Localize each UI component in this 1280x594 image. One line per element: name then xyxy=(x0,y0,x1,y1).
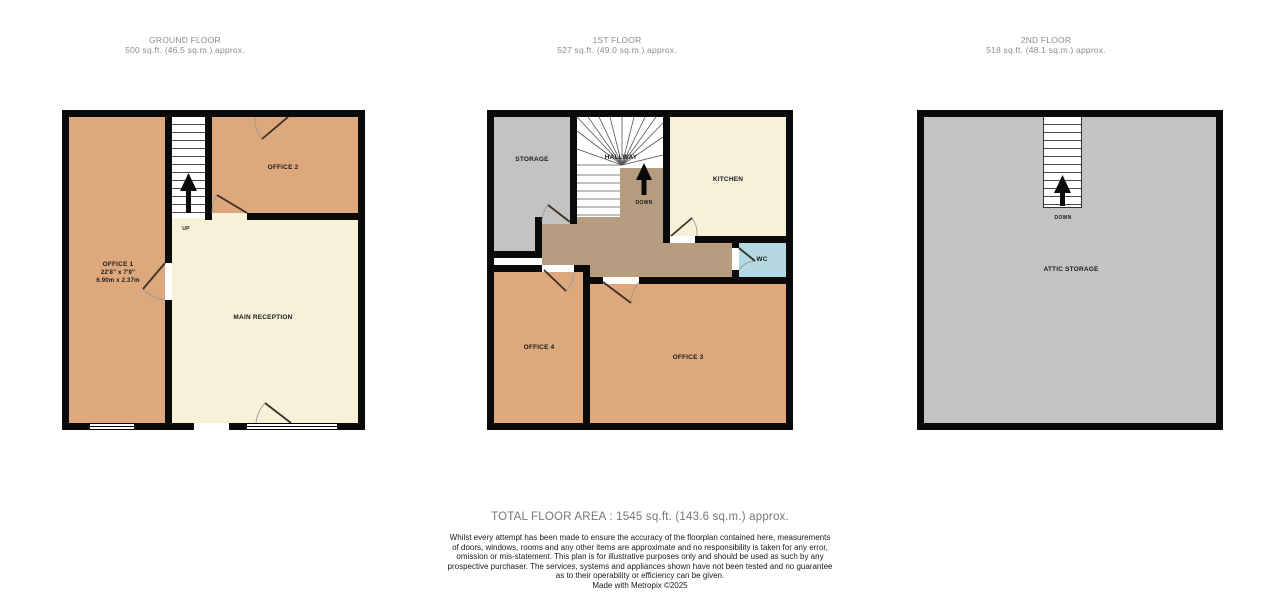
room-label-office-1: OFFICE 1 22'8" x 7'9" 6.90m x 2.37m xyxy=(96,261,139,285)
door-opening xyxy=(194,423,229,430)
room-storage xyxy=(494,117,570,224)
room-label-hallway: HALLWAY xyxy=(605,154,638,162)
stairs-up xyxy=(172,117,205,218)
wall-segment xyxy=(732,243,739,248)
stairs-direction-label: UP xyxy=(182,225,190,233)
room-label-kitchen: KITCHEN xyxy=(713,176,743,184)
wall-segment xyxy=(535,217,542,224)
window xyxy=(90,423,134,430)
second-floor-title: 2ND FLOOR xyxy=(896,35,1196,45)
room-storage-ext xyxy=(494,224,535,251)
wall-segment xyxy=(494,265,542,272)
window xyxy=(247,423,337,430)
room-label-office-2: OFFICE 2 xyxy=(268,164,299,172)
hallway-right xyxy=(663,243,732,277)
room-label-storage: STORAGE xyxy=(515,156,548,164)
office-1-dims-m: 6.90m x 2.37m xyxy=(96,277,139,285)
wall-segment xyxy=(494,251,542,258)
first-floor-area: 527 sq.ft. (49.0 sq.m.) approx. xyxy=(467,45,767,55)
ground-floor-area: 500 sq.ft. (46.5 sq.m.) approx. xyxy=(35,45,335,55)
first-floor-title: 1ST FLOOR xyxy=(467,35,767,45)
total-floor-area: TOTAL FLOOR AREA : 1545 sq.ft. (143.6 sq… xyxy=(410,511,870,523)
wall-segment xyxy=(590,277,603,284)
floorplan-page: { "floors": [ { "title": "GROUND FLOOR",… xyxy=(0,0,1280,594)
stairs-down xyxy=(1043,117,1082,208)
room-label-office-3: OFFICE 3 xyxy=(673,354,704,362)
wall-segment xyxy=(165,117,172,263)
credit-line: Made with Metropix ©2025 xyxy=(410,581,870,590)
room-label-wc: WC xyxy=(756,256,767,264)
wall-segment xyxy=(583,265,590,423)
first-floor-plan: STORAGE HALLWAY KITCHEN WC OFFICE 4 OFFI… xyxy=(487,110,793,430)
second-floor-plan: ATTIC STORAGE DOWN xyxy=(917,110,1223,430)
wall-segment xyxy=(165,300,172,423)
office-1-dims-ft: 22'8" x 7'9" xyxy=(96,269,139,277)
first-floor-header: 1ST FLOOR 527 sq.ft. (49.0 sq.m.) approx… xyxy=(467,35,767,55)
stair-landing xyxy=(620,168,663,217)
wall-segment xyxy=(732,270,739,277)
stairs-direction-label: DOWN xyxy=(635,199,652,207)
office-1-name: OFFICE 1 xyxy=(96,261,139,269)
disclaimer-text: Whilst every attempt has been made to en… xyxy=(410,533,870,581)
room-label-main-reception: MAIN RECEPTION xyxy=(233,314,292,322)
wall-segment xyxy=(695,236,786,243)
second-floor-header: 2ND FLOOR 518 sq.ft. (48.1 sq.m.) approx… xyxy=(896,35,1196,55)
second-floor-area: 518 sq.ft. (48.1 sq.m.) approx. xyxy=(896,45,1196,55)
wall-segment xyxy=(639,277,786,284)
ground-floor-header: GROUND FLOOR 500 sq.ft. (46.5 sq.m.) app… xyxy=(35,35,335,55)
wall-segment xyxy=(663,117,670,243)
ground-floor-plan: OFFICE 1 22'8" x 7'9" 6.90m x 2.37m OFFI… xyxy=(62,110,365,430)
wall-segment xyxy=(570,117,577,217)
room-label-attic-storage: ATTIC STORAGE xyxy=(1043,266,1098,274)
room-label-office-4: OFFICE 4 xyxy=(524,344,555,352)
wall-segment xyxy=(570,217,577,224)
wall-segment xyxy=(205,117,212,220)
wall-segment xyxy=(247,213,358,220)
wall-segment xyxy=(574,265,583,272)
ground-floor-title: GROUND FLOOR xyxy=(35,35,335,45)
stairs-direction-label: DOWN xyxy=(1054,214,1071,222)
